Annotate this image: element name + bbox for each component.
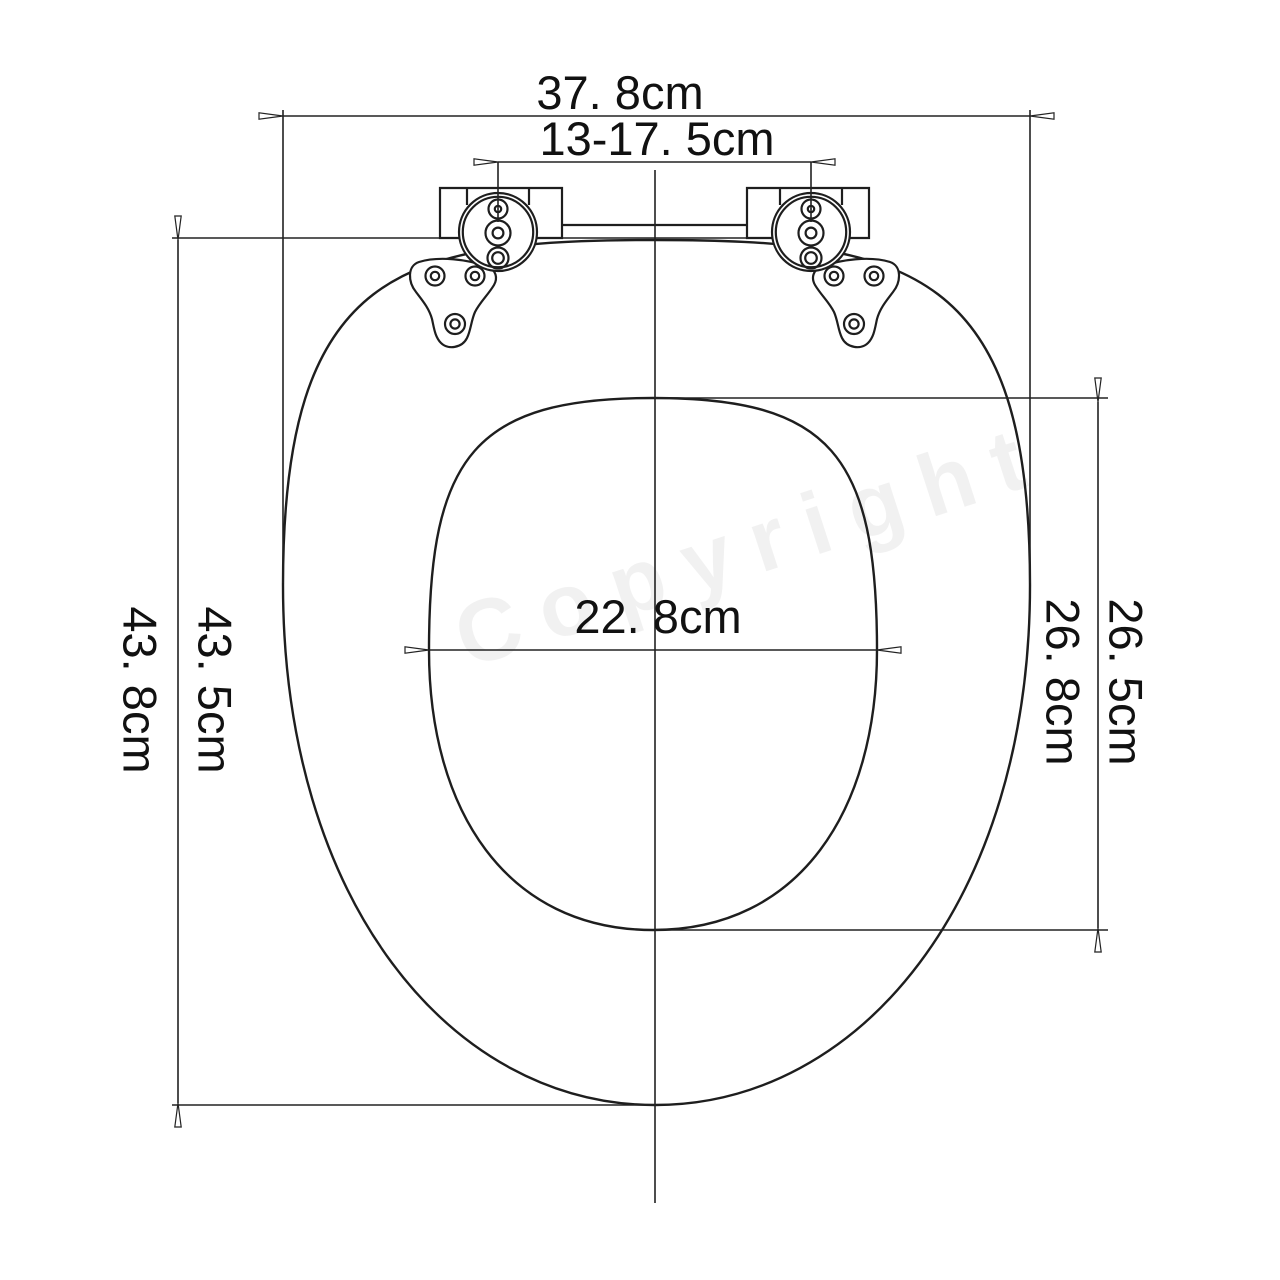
hinge-left xyxy=(410,188,562,347)
hinge-right xyxy=(747,188,899,347)
toilet-seat-drawing: Copyright 37. 8cm 13-17. 5cm 22. 8cm 43.… xyxy=(0,0,1280,1280)
watermark-text: Copyright xyxy=(443,403,1057,687)
label-inner-length-outer: 26. 8cm xyxy=(1037,598,1090,765)
label-seat-length: 43. 5cm xyxy=(189,606,242,773)
label-hinge-spacing: 13-17. 5cm xyxy=(539,112,774,165)
label-total-length: 43. 8cm xyxy=(114,606,167,773)
label-inner-length: 26. 5cm xyxy=(1100,598,1153,765)
dimension-diagram: Copyright 37. 8cm 13-17. 5cm 22. 8cm 43.… xyxy=(0,0,1280,1280)
seat-outer-outline xyxy=(283,240,1030,1105)
label-inner-width: 22. 8cm xyxy=(574,590,741,643)
